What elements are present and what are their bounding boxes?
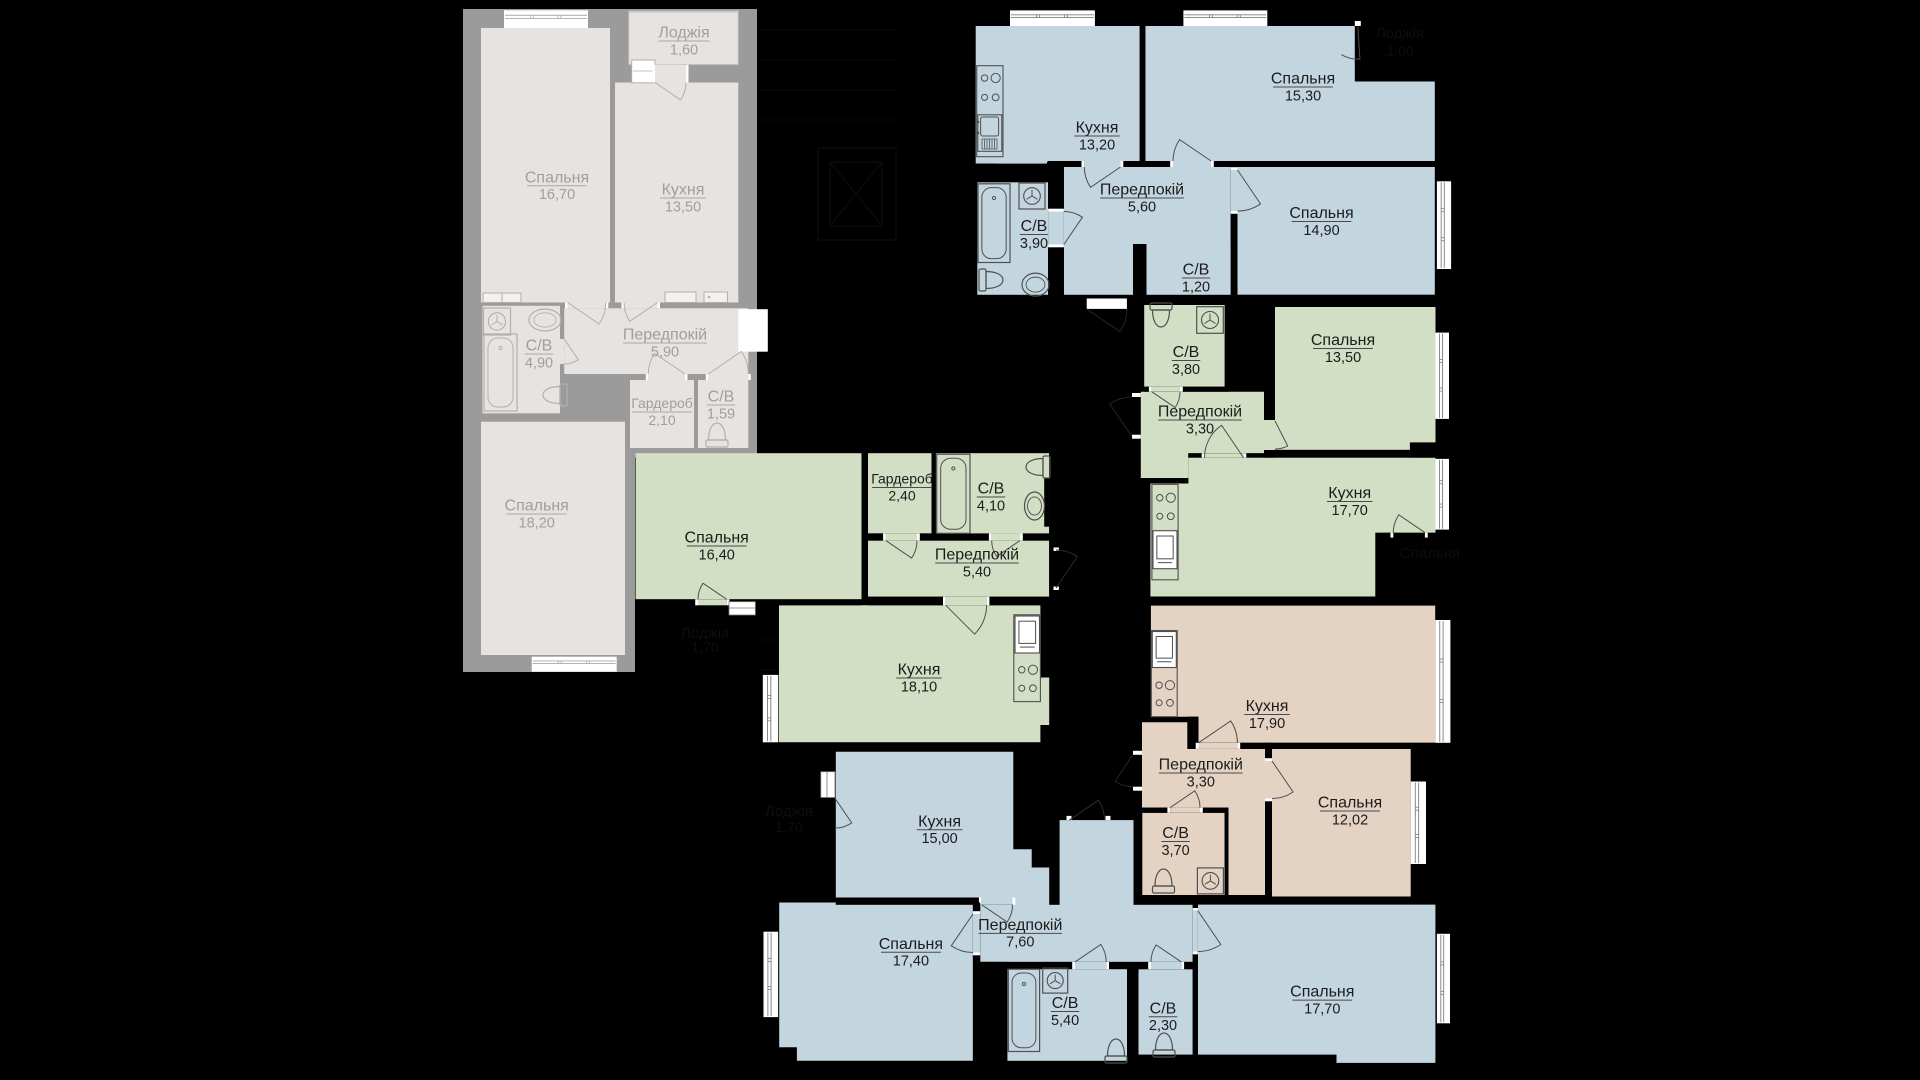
svg-text:5,40: 5,40 bbox=[1051, 1013, 1079, 1029]
svg-text:14,90: 14,90 bbox=[1303, 223, 1339, 239]
svg-text:С/В: С/В bbox=[526, 338, 553, 355]
svg-text:С/В: С/В bbox=[1150, 1000, 1177, 1017]
svg-text:Кухня: Кухня bbox=[918, 813, 961, 830]
svg-text:С/В: С/В bbox=[1021, 218, 1048, 235]
svg-text:Передпокій: Передпокій bbox=[1100, 182, 1184, 199]
svg-text:16,70: 16,70 bbox=[539, 187, 575, 203]
svg-text:С/В: С/В bbox=[1173, 344, 1200, 361]
svg-text:С/В: С/В bbox=[1183, 262, 1210, 279]
svg-text:Передпокій: Передпокій bbox=[978, 917, 1062, 934]
svg-text:С/В: С/В bbox=[978, 481, 1005, 498]
svg-text:12,02: 12,02 bbox=[1332, 812, 1368, 828]
svg-text:1,20: 1,20 bbox=[1182, 279, 1210, 295]
svg-text:Передпокій: Передпокій bbox=[1158, 404, 1242, 421]
svg-text:Спальня: Спальня bbox=[1311, 332, 1375, 349]
svg-text:Передпокій: Передпокій bbox=[935, 547, 1019, 564]
svg-text:13,50: 13,50 bbox=[665, 199, 701, 215]
svg-text:17,90: 17,90 bbox=[1249, 716, 1285, 732]
svg-text:4,10: 4,10 bbox=[977, 498, 1005, 514]
svg-text:Кухня: Кухня bbox=[1076, 120, 1119, 137]
svg-text:Лоджія: Лоджія bbox=[1376, 25, 1424, 42]
svg-text:Гардероб: Гардероб bbox=[871, 470, 933, 486]
svg-text:Передпокій: Передпокій bbox=[623, 327, 707, 344]
svg-text:2,30: 2,30 bbox=[1149, 1018, 1177, 1034]
svg-text:Спальня: Спальня bbox=[525, 169, 589, 186]
svg-text:17,70: 17,70 bbox=[1332, 503, 1368, 519]
svg-text:Лоджія: Лоджія bbox=[765, 803, 813, 820]
svg-text:Кухня: Кухня bbox=[1246, 698, 1289, 715]
svg-text:Спальня: Спальня bbox=[879, 936, 943, 953]
svg-text:С/В: С/В bbox=[1052, 995, 1079, 1012]
svg-text:3,70: 3,70 bbox=[1161, 843, 1189, 859]
svg-text:5,90: 5,90 bbox=[651, 344, 679, 360]
svg-text:1,70: 1,70 bbox=[775, 819, 802, 835]
svg-text:1,60: 1,60 bbox=[670, 42, 698, 58]
svg-text:17,70: 17,70 bbox=[1304, 1001, 1340, 1017]
svg-text:1,00: 1,00 bbox=[1386, 43, 1413, 59]
svg-text:3,90: 3,90 bbox=[1020, 236, 1048, 252]
svg-text:Спальня: Спальня bbox=[1289, 205, 1353, 222]
svg-text:15,00: 15,00 bbox=[921, 831, 957, 847]
svg-text:5,60: 5,60 bbox=[1128, 199, 1156, 215]
svg-text:Лоджія: Лоджія bbox=[658, 25, 709, 42]
svg-text:7,60: 7,60 bbox=[1006, 935, 1034, 951]
svg-text:18,20: 18,20 bbox=[519, 515, 555, 531]
svg-text:13,50: 13,50 bbox=[1325, 350, 1361, 366]
svg-text:4,90: 4,90 bbox=[525, 355, 553, 371]
svg-text:5,40: 5,40 bbox=[963, 564, 991, 580]
svg-text:13,20: 13,20 bbox=[1079, 137, 1115, 153]
svg-text:Кухня: Кухня bbox=[662, 182, 705, 199]
svg-text:17,40: 17,40 bbox=[893, 953, 929, 969]
svg-text:Спальня: Спальня bbox=[685, 530, 749, 547]
svg-text:2,10: 2,10 bbox=[648, 412, 675, 428]
svg-text:3,30: 3,30 bbox=[1186, 421, 1214, 437]
svg-text:18,10: 18,10 bbox=[901, 679, 937, 695]
svg-text:Передпокій: Передпокій bbox=[1159, 757, 1243, 774]
svg-text:Гардероб: Гардероб bbox=[631, 395, 693, 411]
svg-text:С/В: С/В bbox=[1162, 825, 1189, 842]
svg-text:16,40: 16,40 bbox=[699, 547, 735, 563]
svg-text:15,30: 15,30 bbox=[1285, 88, 1321, 104]
svg-text:Спальня: Спальня bbox=[505, 498, 569, 515]
svg-text:Спальня: Спальня bbox=[1400, 545, 1460, 562]
svg-text:2,40: 2,40 bbox=[888, 488, 915, 504]
svg-text:Спальня: Спальня bbox=[1318, 795, 1382, 812]
svg-text:Кухня: Кухня bbox=[898, 662, 941, 679]
svg-text:Спальня: Спальня bbox=[1290, 984, 1354, 1001]
svg-text:С/В: С/В bbox=[708, 389, 735, 406]
svg-text:3,30: 3,30 bbox=[1187, 774, 1215, 790]
svg-text:Спальня: Спальня bbox=[1271, 71, 1335, 88]
svg-text:1,70: 1,70 bbox=[691, 639, 718, 655]
svg-text:Кухня: Кухня bbox=[1328, 485, 1371, 502]
svg-text:3,80: 3,80 bbox=[1172, 362, 1200, 378]
svg-text:1,59: 1,59 bbox=[707, 406, 735, 422]
